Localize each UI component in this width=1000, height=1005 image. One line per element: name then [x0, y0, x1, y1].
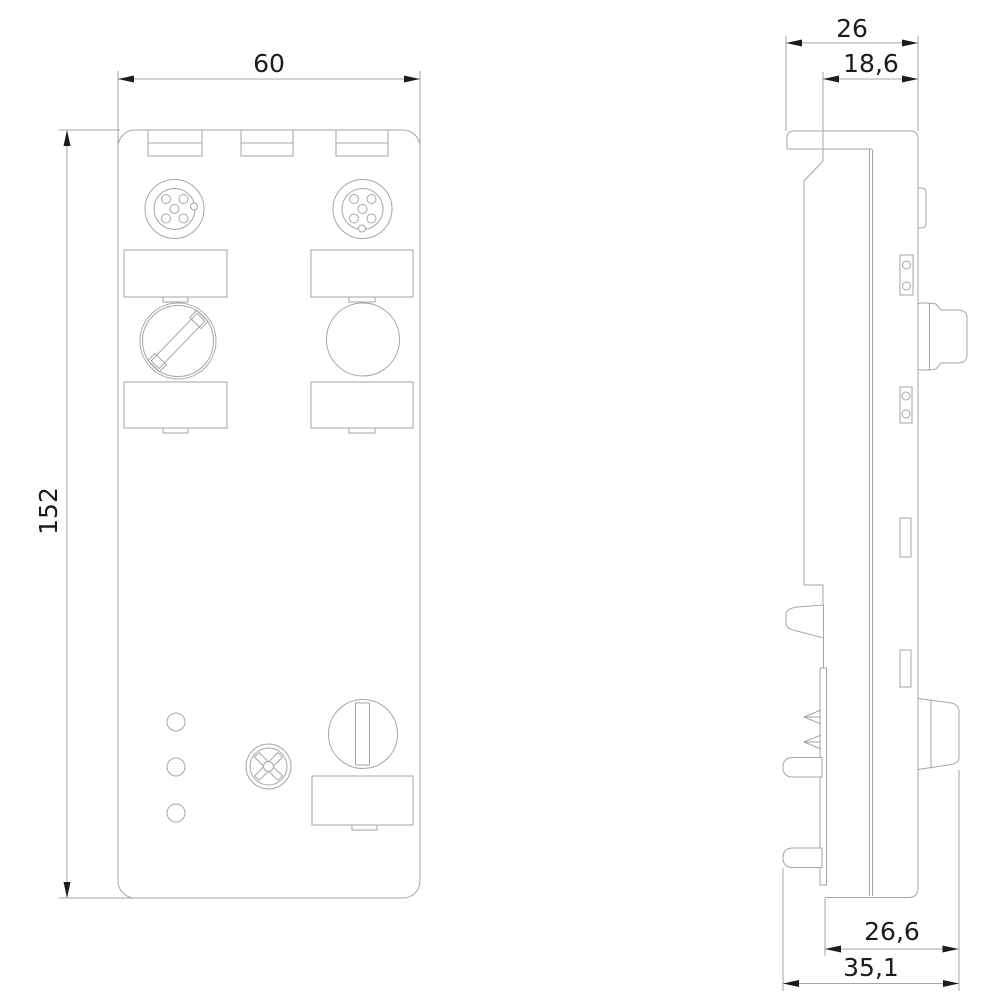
addressing-slot — [356, 703, 370, 765]
clamp-hole — [903, 282, 911, 290]
side-bump — [918, 188, 926, 228]
rear-pins — [783, 758, 822, 868]
arrowhead — [902, 40, 918, 47]
pin-hole — [367, 195, 376, 204]
m12-socket-right — [333, 180, 392, 239]
dim-width-value: 60 — [253, 49, 285, 78]
arrowhead — [943, 946, 959, 953]
clamp-hole — [902, 392, 910, 400]
arrowhead — [404, 76, 420, 83]
dim-connector-depth-value: 26,6 — [864, 917, 920, 946]
pin-hole — [358, 205, 367, 214]
pin — [783, 848, 822, 868]
m12-connector-profile — [918, 303, 967, 371]
pin-hole — [350, 214, 359, 223]
technical-drawing-page: 60 152 — [0, 0, 1000, 1000]
spring — [804, 710, 821, 724]
connector-body — [918, 303, 967, 370]
din-rail-latch — [786, 605, 824, 638]
pin-hole — [367, 214, 376, 223]
arrowhead — [943, 980, 959, 987]
pin — [783, 758, 822, 778]
front-view: 60 152 — [34, 49, 420, 898]
clamp-hole — [903, 261, 911, 269]
dim-height-value: 152 — [34, 487, 63, 535]
arrowhead — [902, 76, 918, 83]
spring — [804, 735, 821, 749]
dim-overall-depth-value: 35,1 — [843, 953, 899, 982]
keying-notch — [359, 225, 366, 232]
side-view: 26 18,6 26,6 35,1 — [783, 14, 967, 991]
pin-hole — [350, 195, 359, 204]
rear-profile-upper — [804, 149, 823, 605]
clamp-hole — [902, 410, 910, 418]
top-flange — [787, 131, 918, 149]
housing-split-lines — [870, 150, 873, 897]
vent-slot — [900, 518, 911, 557]
m12-socket-left — [145, 180, 204, 239]
arrowhead — [825, 946, 841, 953]
dim-flange-value: 26 — [836, 14, 868, 43]
pin-hole — [179, 195, 188, 204]
socket-body — [918, 699, 959, 770]
vent-slot — [900, 650, 911, 687]
pin-hole — [162, 214, 171, 223]
pin-hole — [162, 195, 171, 204]
pin-hole — [170, 205, 179, 214]
arrowhead — [786, 40, 802, 47]
front-body-outline — [118, 130, 420, 898]
arrowhead — [118, 76, 134, 83]
dim-housing-value: 18,6 — [843, 49, 899, 78]
dim-side-housing: 18,6 — [823, 49, 918, 150]
arrowhead — [64, 882, 71, 898]
contact-springs — [804, 710, 821, 749]
clamp-contact-lower — [900, 387, 912, 423]
addressing-socket-profile — [918, 699, 959, 770]
arrowhead — [783, 980, 799, 987]
pin-hole — [179, 214, 188, 223]
dimensional-drawing: 60 152 — [0, 0, 1000, 1000]
keying-notch — [191, 203, 198, 210]
arrowhead — [64, 130, 71, 146]
clamp-contact-upper — [900, 255, 913, 295]
arrowhead — [823, 76, 839, 83]
